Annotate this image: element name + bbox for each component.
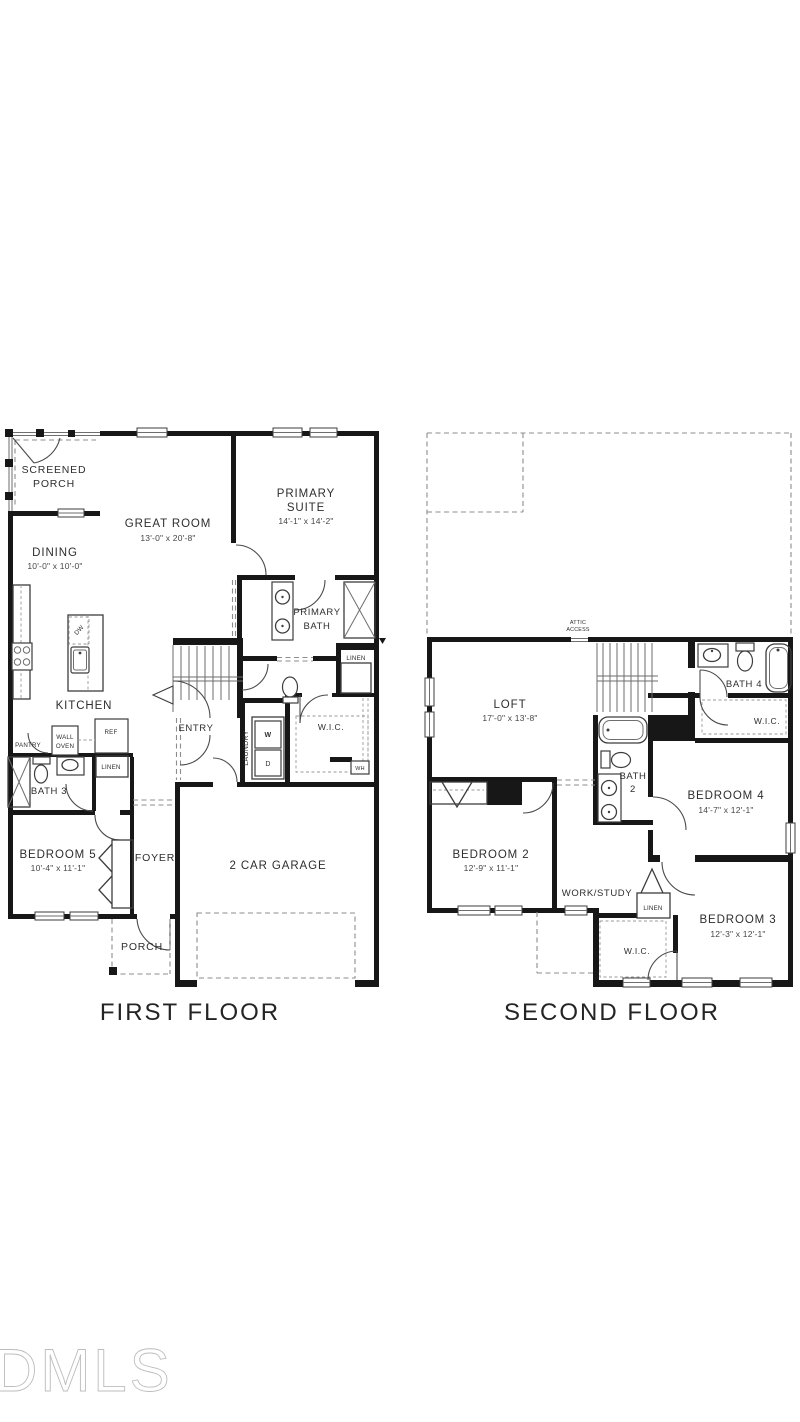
watermark-logo: DMLS (0, 1337, 173, 1404)
primary-shower-icon (344, 582, 375, 638)
label-dishwasher: DW (73, 624, 85, 637)
toilet-icon-bath3 (33, 757, 50, 783)
label-pantry: PANTRY (15, 742, 41, 749)
label-attic-access-1: ATTIC (570, 620, 586, 626)
label-dryer: D (265, 761, 270, 768)
label-garage: 2 CAR GARAGE (229, 860, 326, 872)
bedroom5-closet (99, 840, 133, 908)
laundry-appliances (252, 717, 369, 779)
stairs-second-floor (597, 643, 658, 712)
label-bath2-1: BATH (619, 771, 646, 782)
attic-access-hatch (571, 639, 588, 642)
label-great-room: GREAT ROOM (125, 518, 212, 530)
stair-direction-arrow (153, 686, 173, 704)
label-bedroom5: BEDROOM 5 (19, 849, 96, 861)
label-great-room-dims: 13'-0" x 20'-8" (140, 533, 195, 543)
bathtub-icon-bath4 (766, 644, 791, 692)
label-screened-porch-1: SCREENED (22, 464, 87, 476)
label-bath4: BATH 4 (726, 679, 762, 690)
label-water-heater: WH (355, 766, 364, 772)
second-floor-dashed-outline (427, 433, 791, 635)
label-work-study: WORK/STUDY (562, 888, 632, 899)
stairs-first-floor (153, 645, 243, 712)
bathtub-icon-bath2 (599, 717, 647, 743)
bath2-vanity (598, 774, 621, 822)
refrigerator-box (95, 719, 128, 753)
label-primary-suite-2: SUITE (287, 502, 325, 514)
range-icon (12, 643, 32, 670)
label-bedroom2: BEDROOM 2 (452, 849, 529, 861)
garage-door-outline (197, 913, 355, 978)
sink-icon (71, 647, 89, 673)
toilet-icon-bath2 (601, 751, 631, 768)
label-linen2: LINEN (643, 905, 662, 912)
kitchen-island (68, 615, 103, 691)
label-primary-bath-1: PRIMARY (293, 607, 340, 618)
label-ref: REF (105, 729, 118, 736)
second-floor-plan: ATTIC ACCESS LOFT 17'-0" x 13'-8" BATH 4… (425, 433, 795, 1026)
label-primary-suite-dims: 14'-1" x 14'-2" (278, 516, 333, 526)
second-floor-windows (425, 678, 795, 987)
label-primary-suite-1: PRIMARY (277, 488, 336, 500)
label-wic-bedroom3: W.I.C. (624, 946, 650, 956)
first-floor-plan: SCREENED PORCH DINING 10'-0" x 10'-0" GR… (5, 428, 386, 1026)
label-foyer: FOYER (135, 852, 175, 864)
label-bedroom4: BEDROOM 4 (687, 790, 764, 802)
label-loft: LOFT (494, 699, 527, 711)
label-bedroom3: BEDROOM 3 (699, 914, 776, 926)
label-bedroom5-dims: 10'-4" x 11'-1" (31, 863, 86, 873)
label-dining: DINING (32, 547, 78, 559)
label-wall-oven-1: WALL (56, 734, 74, 741)
label-linen-hall: LINEN (101, 764, 120, 771)
label-porch: PORCH (121, 941, 163, 953)
label-screened-porch-2: PORCH (33, 478, 75, 490)
floor-plan-page: SCREENED PORCH DINING 10'-0" x 10'-0" GR… (0, 0, 800, 1422)
label-bedroom3-dims: 12'-3" x 12'-1" (710, 929, 765, 939)
bath3-sink-icon (57, 757, 84, 775)
floor-plan-canvas: SCREENED PORCH DINING 10'-0" x 10'-0" GR… (0, 0, 800, 1422)
label-wall-oven-2: OVEN (56, 743, 74, 750)
label-kitchen: KITCHEN (56, 700, 113, 712)
label-primary-bath-2: BATH (303, 621, 330, 632)
porch-post (109, 967, 117, 975)
label-loft-dims: 17'-0" x 13'-8" (482, 713, 537, 723)
first-floor-labels: SCREENED PORCH DINING 10'-0" x 10'-0" GR… (15, 464, 365, 1026)
label-bath2-2: 2 (630, 784, 636, 795)
label-dining-dims: 10'-0" x 10'-0" (27, 561, 82, 571)
label-wic-bath4: W.I.C. (754, 716, 780, 726)
second-floor-caption: SECOND FLOOR (504, 999, 720, 1026)
label-attic-access-2: ACCESS (566, 627, 590, 633)
label-linen-bath: LINEN (346, 655, 365, 662)
bedroom2-closet (430, 782, 487, 807)
label-laundry: LAUNDRY (243, 730, 250, 765)
label-bedroom2-dims: 12'-9" x 11'-1" (464, 863, 519, 873)
toilet-icon-bath4 (736, 643, 754, 671)
kitchen-counter (13, 585, 30, 699)
label-entry: ENTRY (178, 723, 213, 734)
primary-bath-vanity (272, 582, 293, 640)
label-bath3: BATH 3 (31, 786, 67, 797)
first-floor-caption: FIRST FLOOR (100, 999, 280, 1026)
label-wic: W.I.C. (318, 722, 344, 732)
toilet-icon-primary (283, 677, 299, 703)
linen-closet-box (341, 663, 371, 693)
label-washer: W (265, 732, 272, 739)
bath4-vanity (698, 644, 728, 667)
label-bedroom4-dims: 14'-7" x 12'-1" (698, 805, 753, 815)
